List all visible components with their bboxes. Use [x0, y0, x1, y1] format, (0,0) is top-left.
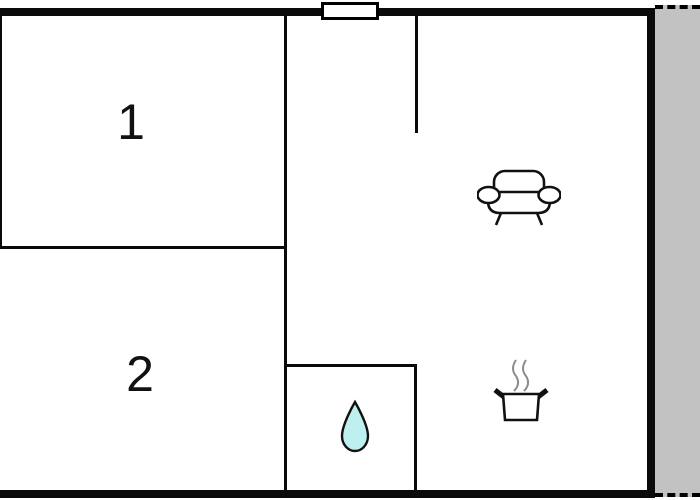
wall-room-divider: [0, 246, 287, 249]
window-marker: [321, 2, 379, 20]
water-drop-icon: [339, 399, 371, 457]
wall-bathroom-top: [284, 364, 417, 367]
wall-bathroom-right: [414, 364, 417, 490]
wall-main-vertical: [284, 16, 287, 490]
terrace-strip: [655, 5, 700, 497]
room-2-label: 2: [110, 350, 170, 398]
room-1-label: 1: [101, 98, 161, 146]
wall-bottom: [0, 490, 654, 498]
floor-plan: 1 2: [0, 0, 700, 500]
sofa-icon: [477, 167, 561, 227]
wall-right: [647, 8, 655, 498]
cooking-pot-icon: [489, 356, 553, 424]
wall-left: [0, 16, 2, 247]
wall-hallway: [415, 16, 418, 133]
